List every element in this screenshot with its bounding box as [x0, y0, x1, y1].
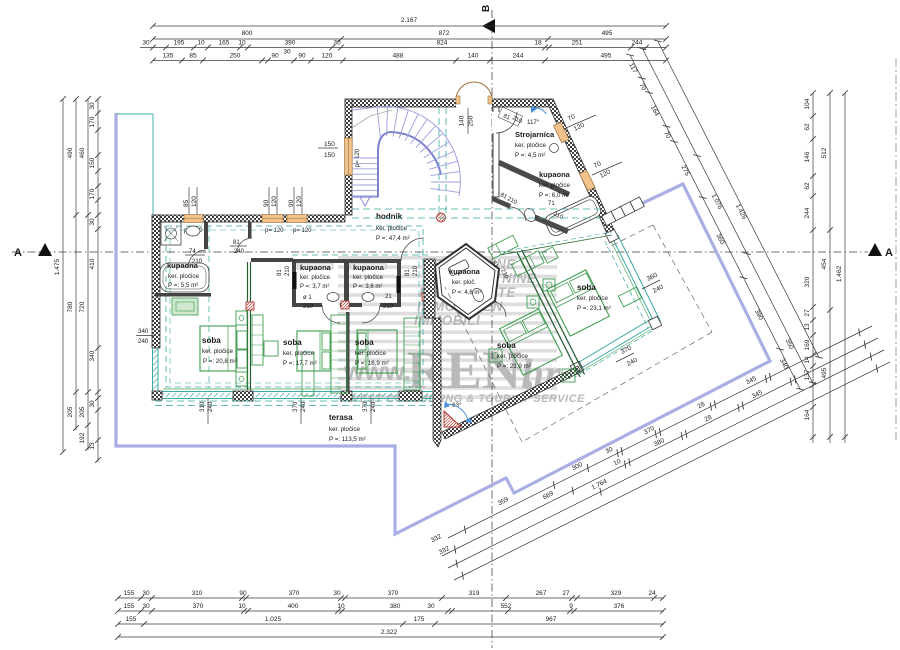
svg-text:2.167: 2.167 [401, 17, 418, 24]
svg-text:251: 251 [572, 40, 583, 47]
svg-text:P =: 17,7 m²: P =: 17,7 m² [283, 360, 317, 367]
svg-text:soba: soba [497, 341, 516, 350]
svg-text:1.025: 1.025 [265, 616, 282, 623]
svg-text:210: 210 [383, 304, 394, 310]
svg-text:169: 169 [804, 339, 811, 350]
svg-text:454: 454 [821, 258, 828, 269]
svg-text:85: 85 [189, 53, 197, 60]
svg-text:800: 800 [242, 30, 253, 37]
svg-text:90: 90 [263, 199, 270, 207]
svg-text:ø 1: ø 1 [303, 295, 312, 301]
svg-text:872: 872 [439, 30, 450, 37]
svg-text:90: 90 [298, 53, 306, 60]
svg-text:P =: 6,0 m²: P =: 6,0 m² [539, 192, 569, 199]
svg-text:74: 74 [189, 249, 196, 255]
svg-text:370: 370 [292, 401, 299, 412]
svg-text:81: 81 [277, 269, 283, 276]
svg-text:824: 824 [437, 40, 448, 47]
svg-text:205: 205 [67, 406, 74, 417]
svg-text:p= 120: p= 120 [293, 228, 312, 234]
svg-text:10: 10 [238, 603, 246, 610]
svg-text:135: 135 [163, 53, 174, 60]
svg-text:27: 27 [804, 309, 811, 317]
svg-text:hodnik: hodnik [376, 212, 403, 221]
svg-text:kupaona: kupaona [167, 261, 199, 270]
svg-text:21: 21 [385, 294, 392, 300]
svg-text:2.322: 2.322 [381, 629, 398, 636]
svg-text:terasa: terasa [329, 413, 353, 422]
svg-text:240: 240 [234, 249, 245, 255]
svg-text:P =: 4,6 m²: P =: 4,6 m² [452, 290, 481, 296]
svg-text:90: 90 [288, 199, 295, 207]
svg-text:244: 244 [804, 207, 811, 218]
svg-text:P =: 3,6 m²: P =: 3,6 m² [353, 284, 382, 290]
svg-text:175: 175 [414, 616, 425, 623]
svg-text:ker. pločice: ker. pločice [515, 142, 547, 149]
svg-text:1.475: 1.475 [54, 258, 61, 275]
svg-text:210: 210 [413, 265, 419, 276]
svg-text:P =: 20,8 m²: P =: 20,8 m² [203, 358, 237, 365]
svg-text:376: 376 [614, 603, 625, 610]
svg-text:340: 340 [138, 328, 149, 335]
svg-text:117°: 117° [527, 119, 540, 126]
svg-text:140: 140 [468, 53, 479, 60]
svg-text:150: 150 [89, 157, 96, 168]
svg-text:P =: 5,5 m²: P =: 5,5 m² [168, 282, 198, 289]
svg-text:120: 120 [191, 196, 198, 207]
svg-text:329: 329 [611, 590, 622, 597]
svg-text:210: 210 [285, 265, 291, 276]
svg-text:ker. pločice: ker. pločice [168, 273, 200, 280]
svg-text:30: 30 [427, 603, 435, 610]
svg-text:P =: 3,7 m²: P =: 3,7 m² [300, 284, 329, 290]
svg-text:soba: soba [577, 283, 596, 292]
svg-text:P =: 23,9 m²: P =: 23,9 m² [497, 363, 531, 370]
svg-text:488: 488 [393, 53, 404, 60]
svg-text:370: 370 [388, 590, 399, 597]
svg-text:ker. pločice: ker. pločice [202, 348, 234, 355]
svg-text:495: 495 [821, 367, 828, 378]
svg-text:120: 120 [322, 53, 333, 60]
svg-text:104: 104 [804, 98, 811, 109]
svg-text:720: 720 [79, 301, 86, 312]
svg-text:495: 495 [601, 53, 612, 60]
svg-text:165: 165 [219, 40, 230, 47]
svg-text:62: 62 [804, 123, 811, 131]
svg-text:240: 240 [138, 338, 149, 345]
svg-text:30: 30 [89, 218, 96, 226]
svg-text:400: 400 [288, 603, 299, 610]
svg-text:380: 380 [390, 603, 401, 610]
svg-text:30: 30 [89, 102, 96, 110]
svg-text:780: 780 [67, 301, 74, 312]
svg-text:10: 10 [337, 603, 345, 610]
svg-text:ker. pločice: ker. pločice [300, 275, 331, 281]
svg-text:A: A [885, 247, 893, 259]
svg-text:30: 30 [333, 40, 341, 47]
svg-text:120: 120 [296, 196, 303, 207]
svg-text:soba: soba [283, 338, 302, 347]
svg-text:370: 370 [289, 590, 300, 597]
svg-text:155: 155 [124, 590, 135, 597]
svg-text:250: 250 [468, 115, 475, 126]
svg-text:kupaona: kupaona [353, 263, 385, 272]
svg-text:370: 370 [193, 603, 204, 610]
svg-text:495: 495 [602, 30, 613, 37]
svg-text:ker. ploč.: ker. ploč. [452, 280, 476, 286]
svg-text:10: 10 [197, 40, 205, 47]
svg-text:ker. pločice: ker. pločice [329, 426, 361, 433]
svg-text:p= 120: p= 120 [265, 228, 284, 234]
svg-text:967: 967 [546, 616, 557, 623]
svg-text:512: 512 [821, 147, 828, 158]
svg-text:90: 90 [239, 590, 247, 597]
svg-text:310: 310 [199, 401, 206, 412]
svg-text:P =: 4,5 m²: P =: 4,5 m² [515, 152, 545, 159]
svg-text:soba: soba [202, 336, 221, 345]
svg-text:340: 340 [89, 350, 96, 361]
svg-text:A: A [14, 247, 22, 259]
svg-text:192: 192 [79, 432, 86, 443]
svg-text:24: 24 [648, 590, 656, 597]
svg-text:85: 85 [183, 199, 190, 207]
svg-text:ker. pločice: ker. pločice [497, 353, 529, 360]
svg-text:30: 30 [283, 49, 291, 56]
svg-text:ker. pločice: ker. pločice [353, 275, 384, 281]
svg-text:310: 310 [192, 590, 203, 597]
svg-text:30: 30 [142, 590, 150, 597]
svg-text:ker. pločice: ker. pločice [539, 182, 571, 189]
svg-text:267: 267 [536, 590, 547, 597]
svg-text:18: 18 [534, 40, 542, 47]
svg-text:146: 146 [804, 151, 811, 162]
svg-text:P =: 113,5 m²: P =: 113,5 m² [329, 436, 366, 443]
svg-text:soba: soba [355, 338, 374, 347]
svg-text:170: 170 [89, 116, 96, 127]
svg-text:10: 10 [238, 40, 246, 47]
svg-text:kupaona: kupaona [300, 263, 332, 272]
svg-text:205: 205 [79, 406, 86, 417]
svg-text:155: 155 [124, 603, 135, 610]
svg-text:164: 164 [804, 409, 811, 420]
svg-text:170: 170 [89, 188, 96, 199]
svg-text:B: B [481, 5, 492, 12]
svg-text:62: 62 [804, 182, 811, 190]
svg-text:P =: 16,9 m²: P =: 16,9 m² [355, 360, 389, 367]
svg-text:552: 552 [501, 603, 512, 610]
svg-text:30: 30 [142, 603, 150, 610]
svg-text:27: 27 [562, 590, 570, 597]
svg-text:150: 150 [324, 141, 335, 148]
svg-text:90: 90 [271, 53, 279, 60]
svg-text:320: 320 [804, 276, 811, 287]
svg-text:81: 81 [233, 240, 240, 246]
svg-text:460: 460 [79, 147, 86, 158]
svg-text:81: 81 [405, 269, 411, 276]
svg-text:244: 244 [513, 53, 524, 60]
svg-text:155: 155 [126, 616, 137, 623]
svg-text:30: 30 [89, 400, 96, 408]
svg-text:ker. pločice: ker. pločice [283, 350, 315, 357]
svg-text:390: 390 [285, 40, 296, 47]
svg-text:370: 370 [362, 401, 369, 412]
svg-text:Strojarníca: Strojarníca [515, 130, 555, 139]
svg-text:140: 140 [459, 115, 466, 126]
svg-text:ker. pločice: ker. pločice [577, 295, 609, 302]
svg-text:150: 150 [324, 152, 335, 159]
svg-text:P =: 23,1 m²: P =: 23,1 m² [577, 305, 611, 312]
svg-text:490: 490 [67, 147, 74, 158]
svg-text:410: 410 [89, 258, 96, 269]
svg-text:319: 319 [469, 590, 480, 597]
svg-text:120: 120 [271, 196, 278, 207]
svg-text:9: 9 [569, 603, 573, 610]
svg-text:30: 30 [333, 590, 341, 597]
svg-text:30: 30 [142, 40, 150, 47]
svg-text:210: 210 [303, 304, 314, 310]
svg-text:71: 71 [548, 201, 555, 207]
svg-text:195: 195 [174, 40, 185, 47]
svg-text:1.462: 1.462 [836, 265, 843, 282]
svg-text:P =: 47,4 m²: P =: 47,4 m² [376, 235, 410, 242]
svg-text:ker. pločice: ker. pločice [355, 350, 387, 357]
svg-text:250: 250 [230, 53, 241, 60]
svg-text:13: 13 [89, 442, 96, 450]
svg-text:kupaona: kupaona [449, 267, 481, 276]
svg-text:kupaona: kupaona [539, 170, 571, 179]
svg-text:244: 244 [632, 40, 643, 47]
